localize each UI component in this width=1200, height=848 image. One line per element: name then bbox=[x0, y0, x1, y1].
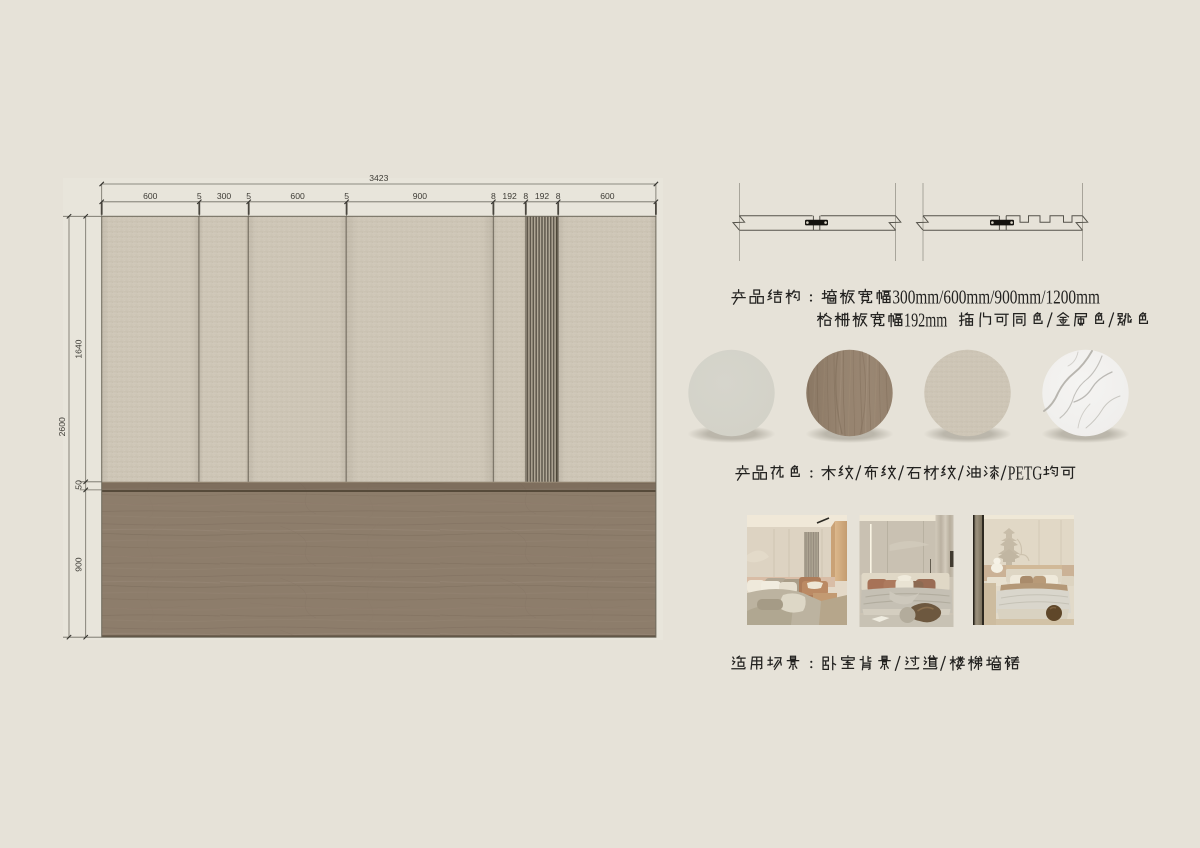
svg-text:PETG: PETG bbox=[1008, 464, 1043, 485]
svg-text:300: 300 bbox=[217, 191, 232, 201]
svg-text:900: 900 bbox=[74, 557, 84, 572]
svg-text:8: 8 bbox=[556, 191, 561, 201]
svg-text:5: 5 bbox=[344, 191, 349, 201]
svg-text:192mm: 192mm bbox=[904, 311, 947, 332]
svg-text:2600: 2600 bbox=[57, 417, 67, 436]
svg-text:900: 900 bbox=[413, 191, 428, 201]
svg-text:600: 600 bbox=[600, 191, 615, 201]
svg-text:50: 50 bbox=[74, 480, 84, 490]
svg-text:8: 8 bbox=[523, 191, 528, 201]
svg-text:300mm/600mm/900mm/1200mm: 300mm/600mm/900mm/1200mm bbox=[892, 288, 1100, 309]
svg-text:192: 192 bbox=[502, 191, 517, 201]
svg-text:600: 600 bbox=[143, 191, 158, 201]
svg-text:5: 5 bbox=[197, 191, 202, 201]
svg-text:1640: 1640 bbox=[74, 339, 84, 358]
svg-text:5: 5 bbox=[246, 191, 251, 201]
svg-text:192: 192 bbox=[535, 191, 550, 201]
svg-text:3423: 3423 bbox=[369, 173, 388, 183]
svg-text:8: 8 bbox=[491, 191, 496, 201]
svg-text:600: 600 bbox=[290, 191, 305, 201]
